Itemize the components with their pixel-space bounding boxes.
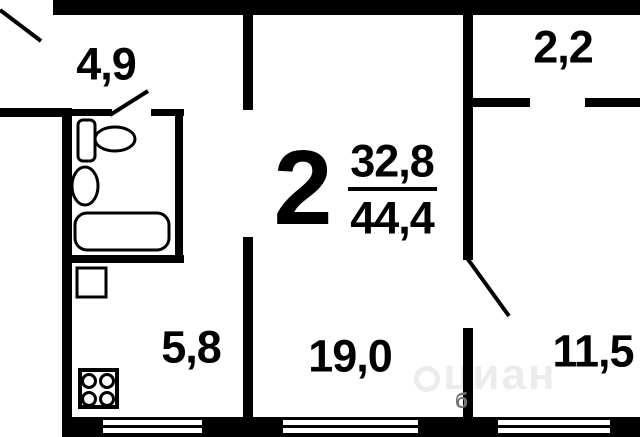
washing-machine-icon [77,268,106,297]
stove-icon [80,370,117,407]
bathtub-icon [75,213,169,250]
toilet-icon [72,167,98,205]
hallway-area-label: 4,9 [76,42,136,87]
entrance-door-swing-icon [0,10,41,41]
watermark-badge: б [455,390,468,414]
sink-icon [78,120,135,161]
balcony-area-label: 2,2 [533,25,593,70]
floor-plan: циан б [0,0,640,437]
bedroom-area-label: 11,5 [552,329,633,374]
living-area-label: 32,8 [350,139,434,184]
rooms-count-label: 2 [274,135,333,241]
bedroom-door-swing-icon [467,258,509,316]
living-room-area-label: 19,0 [308,334,392,379]
kitchen-area-label: 5,8 [161,325,221,370]
area-fraction-line [348,187,437,191]
total-area-label: 44,4 [350,196,434,241]
bathroom-door-swing-icon [110,91,148,115]
